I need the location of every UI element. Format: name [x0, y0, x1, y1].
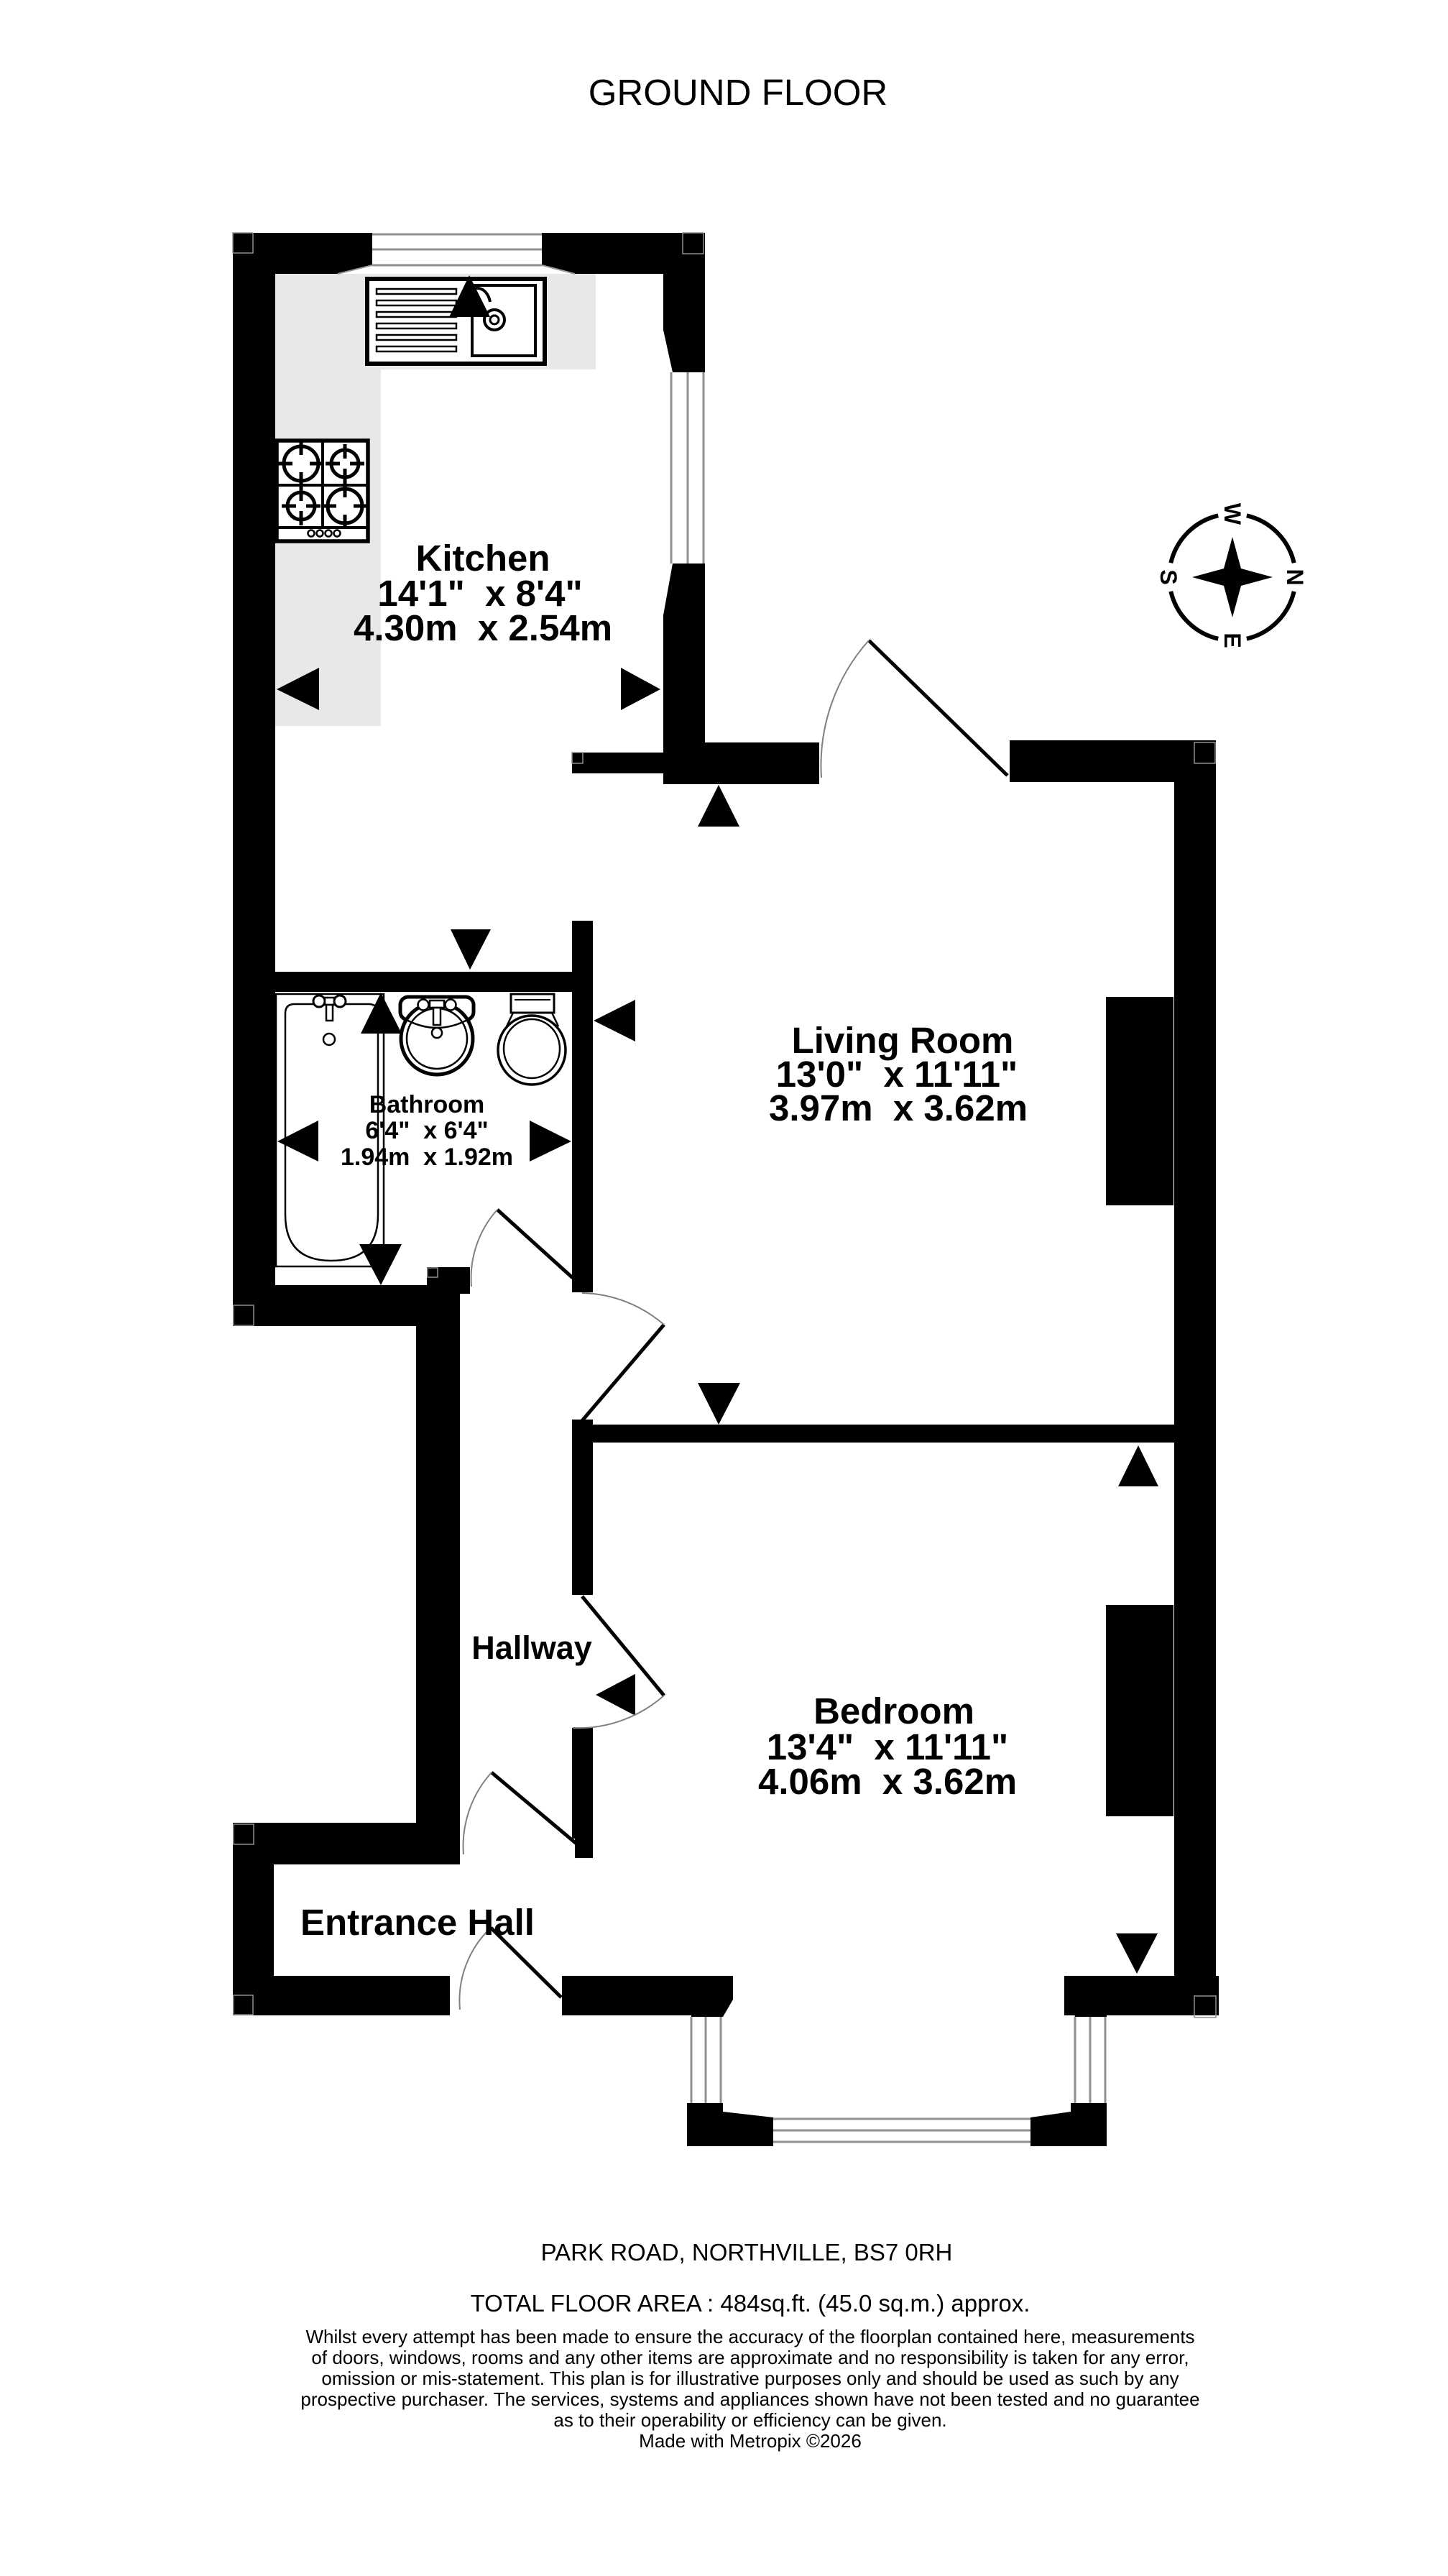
- svg-text:omission or mis-statement. Thi: omission or mis-statement. This plan is …: [321, 2368, 1179, 2389]
- svg-text:Made with Metropix ©2026: Made with Metropix ©2026: [639, 2430, 862, 2452]
- svg-text:1.94m x 1.92m: 1.94m x 1.92m: [341, 1144, 513, 1171]
- svg-text:as to their operability or eff: as to their operability or efficiency ca…: [553, 2409, 946, 2431]
- svg-text:GROUND FLOOR: GROUND FLOOR: [589, 72, 888, 113]
- svg-text:E: E: [1219, 632, 1245, 648]
- svg-text:Whilst every attempt has been: Whilst every attempt has been made to en…: [305, 2326, 1194, 2347]
- svg-text:Bathroom: Bathroom: [369, 1091, 485, 1118]
- svg-text:W: W: [1219, 503, 1245, 525]
- svg-text:prospective purchaser. The ser: prospective purchaser. The services, sys…: [300, 2388, 1199, 2410]
- svg-text:Bedroom: Bedroom: [813, 1690, 974, 1731]
- svg-text:Entrance Hall: Entrance Hall: [300, 1902, 535, 1943]
- svg-text:6'4" x 6'4": 6'4" x 6'4": [365, 1117, 488, 1144]
- svg-text:S: S: [1156, 569, 1181, 584]
- svg-text:TOTAL FLOOR AREA : 484sq.ft. (: TOTAL FLOOR AREA : 484sq.ft. (45.0 sq.m.…: [471, 2290, 1030, 2317]
- svg-text:4.06m x 3.62m: 4.06m x 3.62m: [758, 1761, 1017, 1802]
- svg-text:of doors, windows, rooms and a: of doors, windows, rooms and any other i…: [311, 2347, 1189, 2368]
- svg-text:Hallway: Hallway: [471, 1629, 592, 1666]
- svg-text:4.30m x 2.54m: 4.30m x 2.54m: [354, 607, 612, 648]
- svg-text:PARK ROAD, NORTHVILLE, BS7 0RH: PARK ROAD, NORTHVILLE, BS7 0RH: [541, 2239, 953, 2265]
- svg-text:3.97m x 3.62m: 3.97m x 3.62m: [769, 1087, 1028, 1128]
- svg-text:N: N: [1282, 569, 1308, 585]
